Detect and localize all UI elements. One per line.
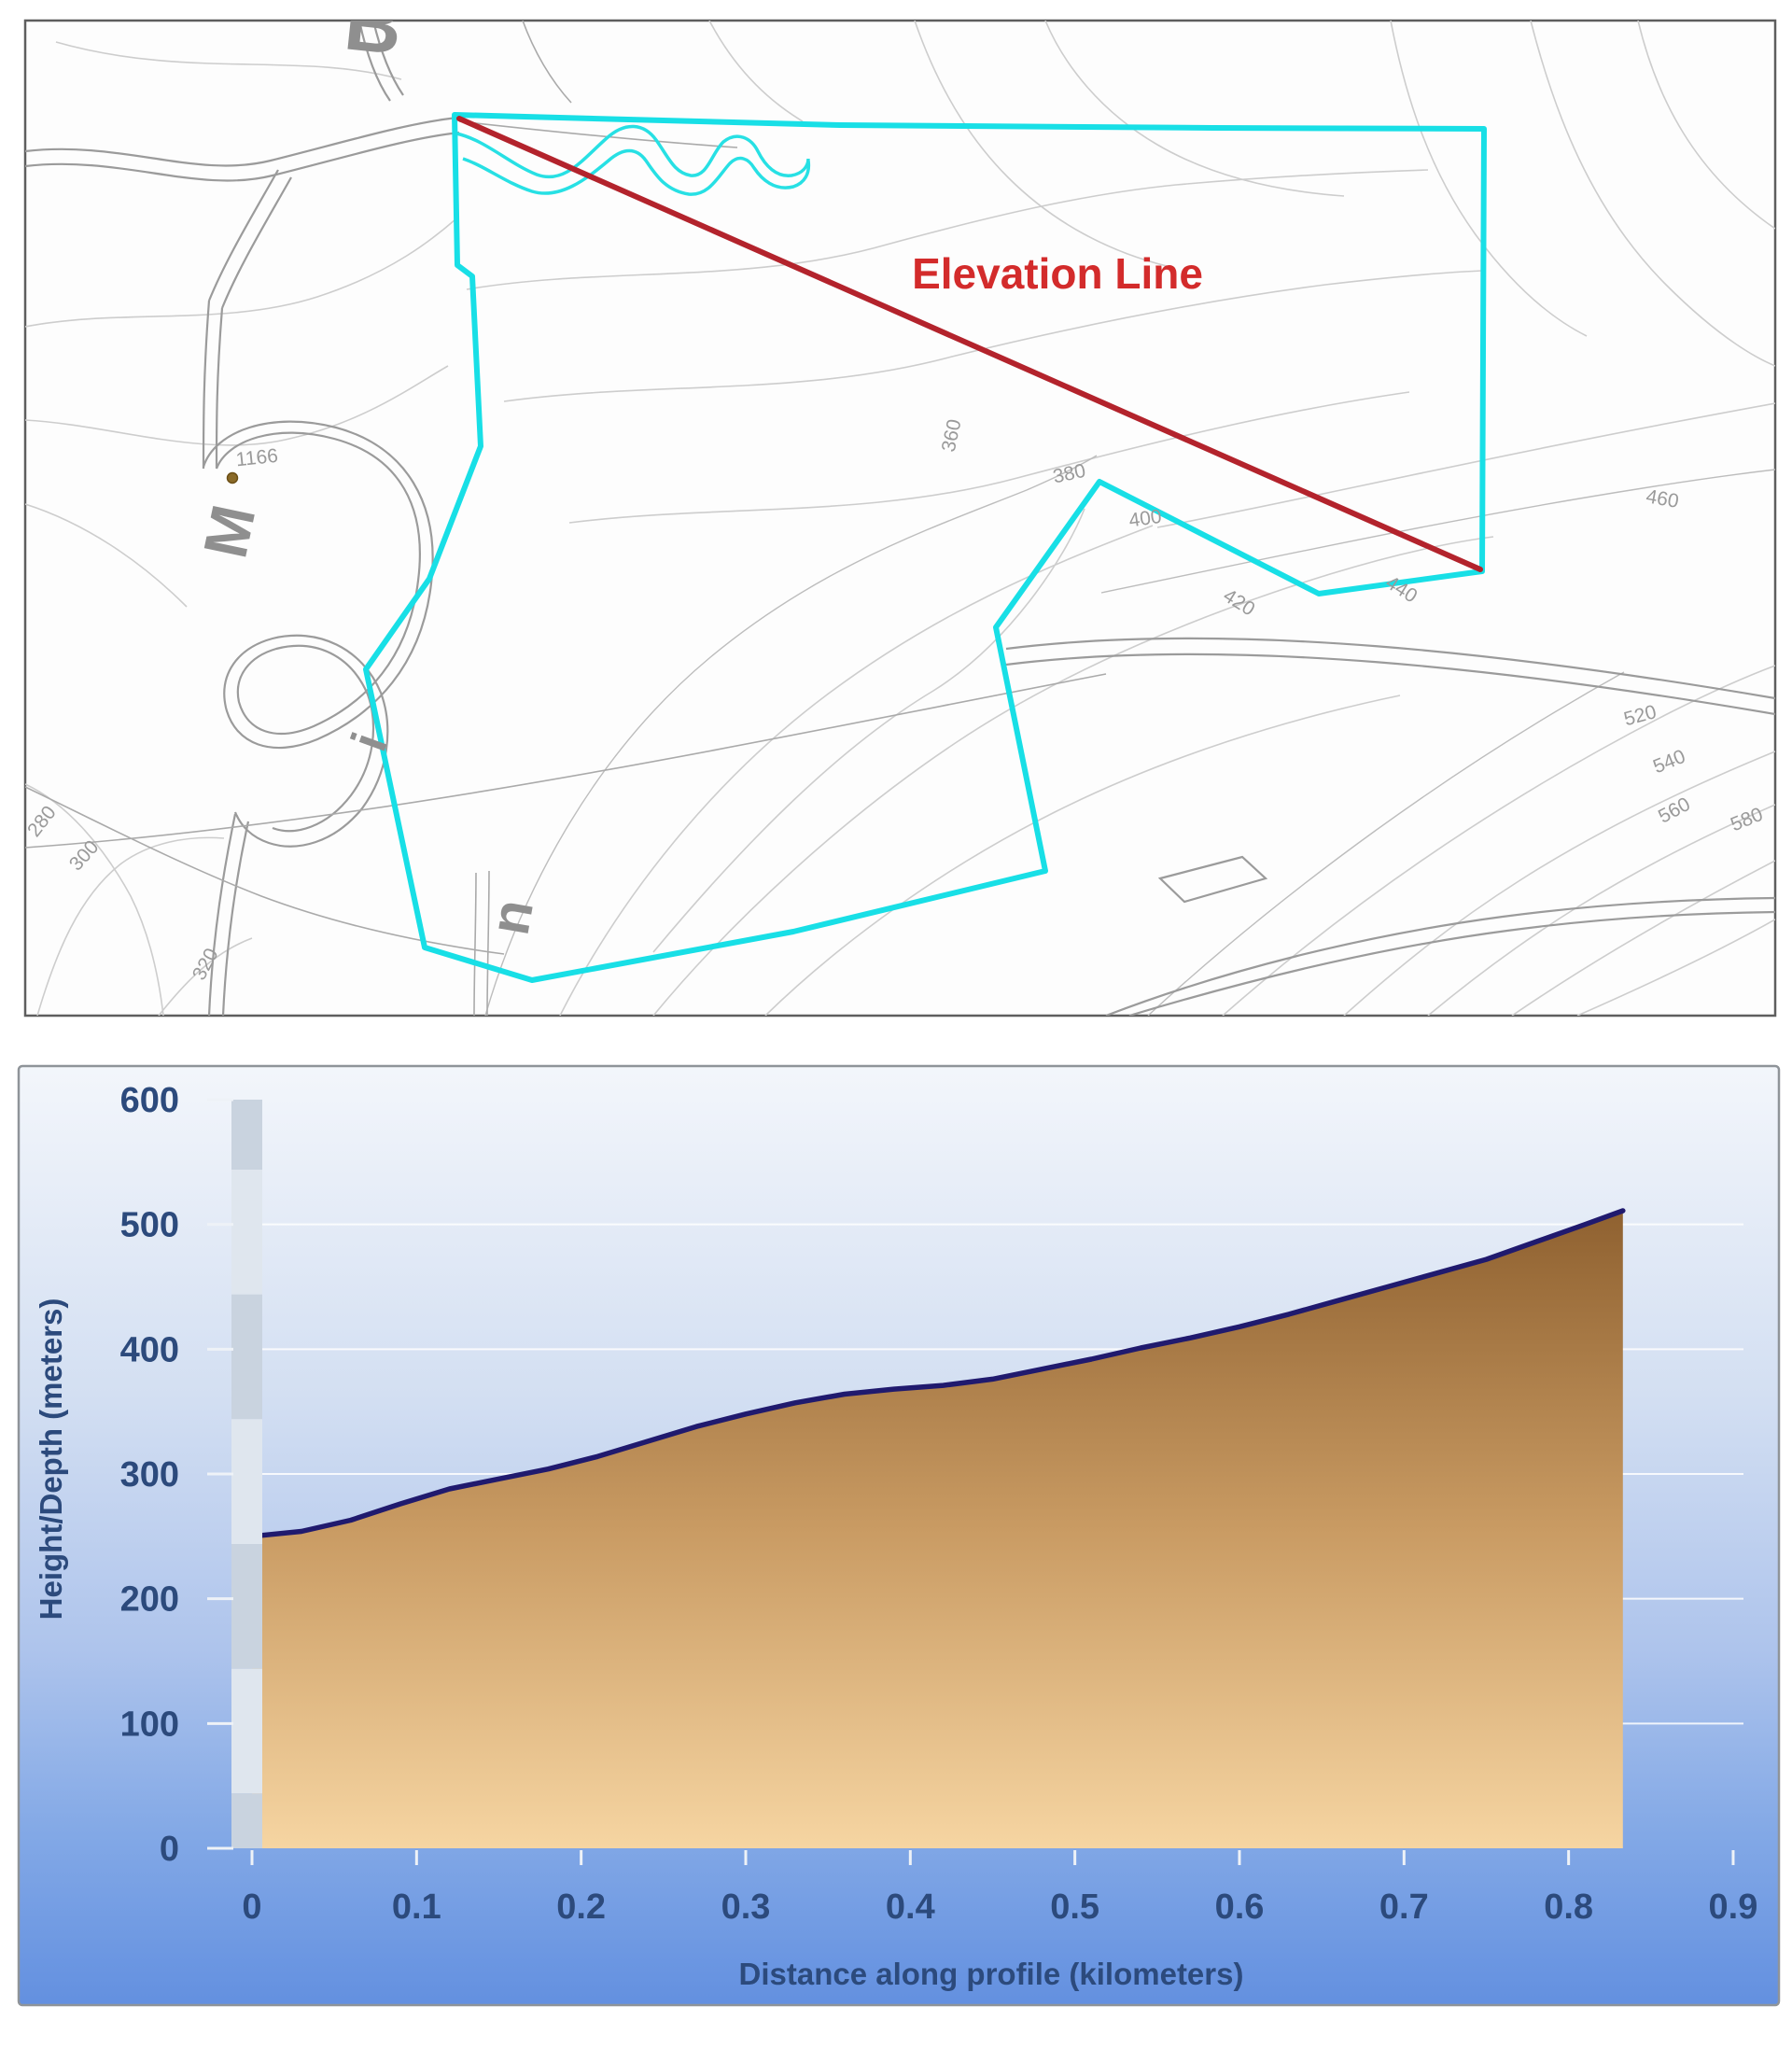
elevation-line-label: Elevation Line	[912, 249, 1203, 298]
y-tick-label-400: 400	[120, 1330, 179, 1369]
scale-bar-segment	[231, 1793, 262, 1848]
y-tick-label-200: 200	[120, 1580, 179, 1620]
spot-height-label: 1166	[235, 445, 279, 471]
scale-bar-segment	[231, 1295, 262, 1420]
y-tick-label-0: 0	[160, 1830, 179, 1869]
x-tick-label-0.2: 0.2	[556, 1888, 606, 1927]
topo-map-panel: Elevation Line28030032036038040042044046…	[23, 0, 1775, 1016]
scale-bar-segment	[231, 1170, 262, 1295]
y-axis-scale-bar	[231, 1100, 262, 1848]
map-border	[25, 21, 1775, 1016]
elevation-profile-chart-panel: 010020030040050060000.10.20.30.40.50.60.…	[19, 1066, 1779, 2005]
x-tick-label-0.4: 0.4	[886, 1888, 935, 1927]
y-tick-label-100: 100	[120, 1705, 179, 1744]
scale-bar-segment	[231, 1419, 262, 1544]
x-tick-label-0.1: 0.1	[392, 1888, 441, 1927]
scale-bar-segment	[231, 1669, 262, 1794]
y-tick-label-300: 300	[120, 1455, 179, 1495]
x-axis-title: Distance along profile (kilometers)	[739, 1957, 1244, 1991]
contour-elevation-label: 400	[1127, 506, 1163, 532]
scale-bar-segment	[231, 1100, 262, 1170]
y-tick-label-600: 600	[120, 1081, 179, 1120]
x-tick-label-0.5: 0.5	[1050, 1888, 1099, 1927]
spot-height-dot	[228, 473, 238, 484]
x-tick-label-0.9: 0.9	[1709, 1888, 1758, 1927]
scale-bar-segment	[231, 1544, 262, 1669]
x-tick-label-0.6: 0.6	[1215, 1888, 1265, 1927]
x-tick-label-0.7: 0.7	[1379, 1888, 1429, 1927]
y-axis-title: Height/Depth (meters)	[34, 1298, 68, 1621]
scene: Elevation Line28030032036038040042044046…	[0, 0, 1792, 2063]
y-tick-label-500: 500	[120, 1206, 179, 1245]
x-tick-label-0: 0	[242, 1888, 261, 1927]
x-tick-label-0.8: 0.8	[1544, 1888, 1593, 1927]
x-tick-label-0.3: 0.3	[721, 1888, 771, 1927]
place-name-letter: B	[341, 0, 406, 71]
